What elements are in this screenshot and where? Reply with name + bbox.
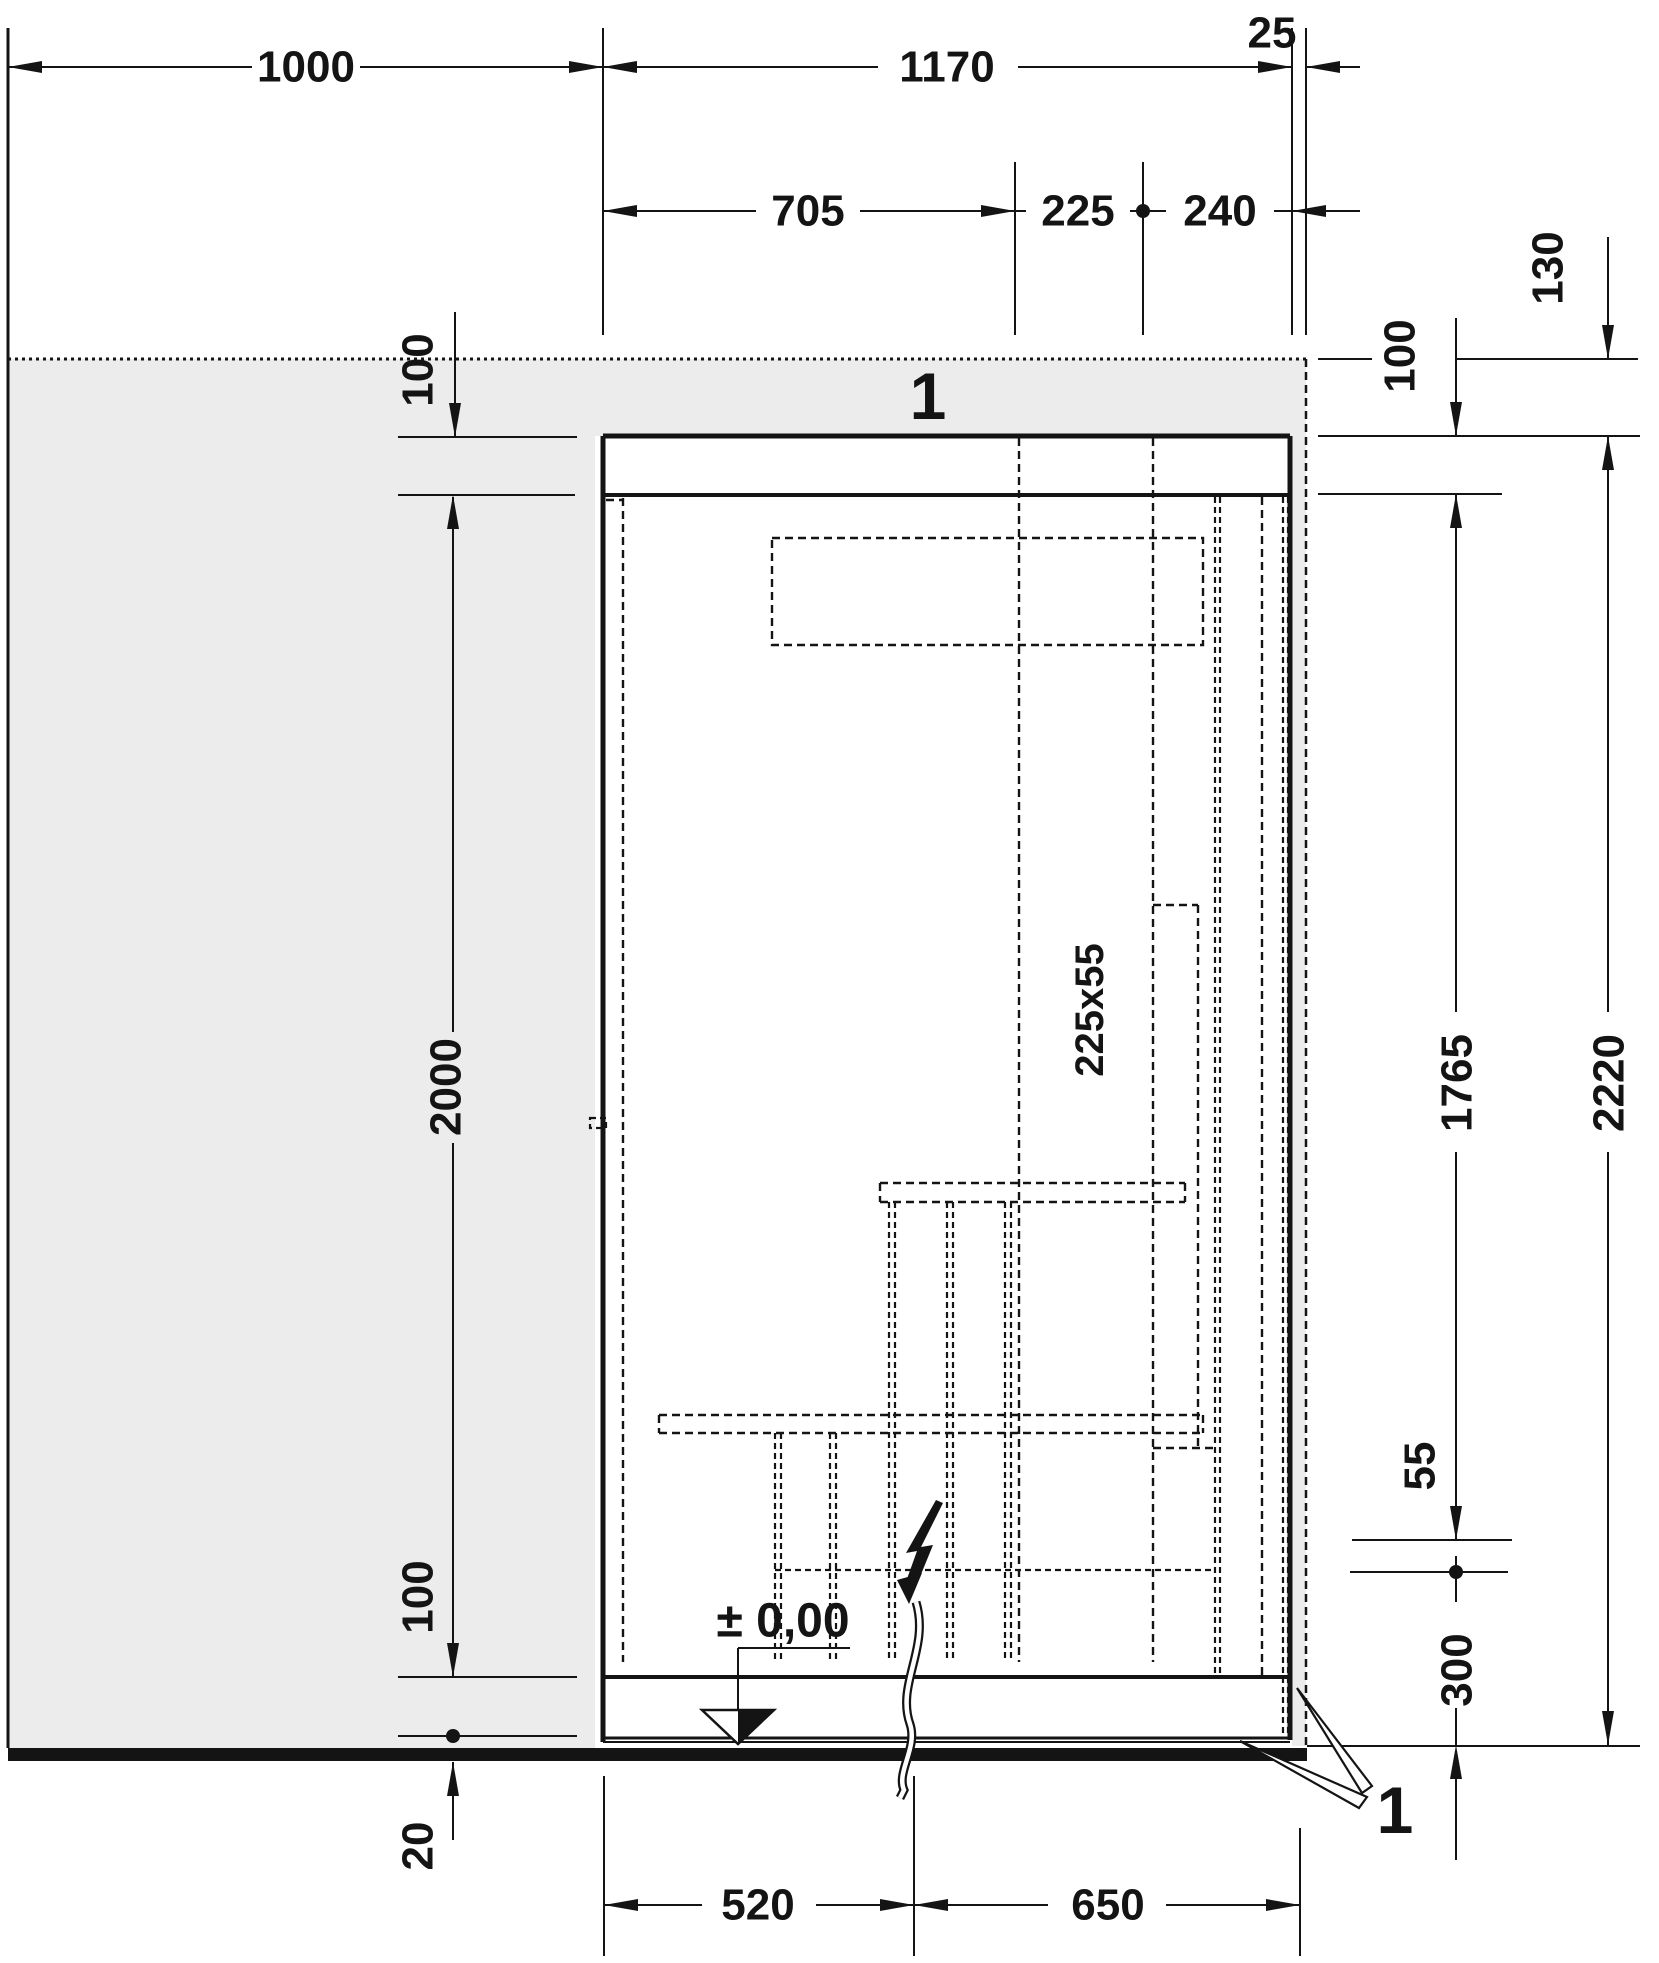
section-markers: 1 1 bbox=[910, 359, 1414, 1847]
dimension-705: 705 bbox=[603, 187, 1015, 236]
dim-label-650: 650 bbox=[1071, 1881, 1144, 1930]
dimension-2220: 2220 bbox=[1585, 436, 1634, 1745]
chain-point-dot-left bbox=[446, 1729, 460, 1743]
floor-level-marker: ± 0,00 bbox=[668, 1595, 893, 1745]
dim-label-100-top-left: 100 bbox=[394, 333, 443, 406]
dimension-650: 650 bbox=[914, 1881, 1300, 1930]
dim-label-225: 225 bbox=[1041, 187, 1114, 236]
dimension-100-right: 100 bbox=[1376, 318, 1463, 436]
dim-label-300: 300 bbox=[1433, 1633, 1482, 1706]
dimension-1000: 1000 bbox=[8, 43, 603, 92]
dimension-240: 240 bbox=[1143, 187, 1360, 236]
floor bbox=[8, 1746, 1640, 1761]
dim-label-55: 55 bbox=[1396, 1442, 1445, 1491]
dimension-row-top: 1000 1170 25 705 225 bbox=[8, 9, 1360, 336]
dim-label-20: 20 bbox=[394, 1822, 443, 1871]
dimension-20: 20 bbox=[394, 1762, 460, 1870]
dim-label-2000: 2000 bbox=[422, 1038, 471, 1136]
dim-label-705: 705 bbox=[771, 187, 844, 236]
installation-drawing: 225x55 ± 0,00 1 1 bbox=[0, 0, 1659, 1963]
dim-label-25: 25 bbox=[1248, 9, 1297, 58]
dimension-225: 225 bbox=[1015, 187, 1150, 236]
lightning-arrow-tip bbox=[897, 1573, 922, 1604]
dim-label-100-bottom-left: 100 bbox=[394, 1560, 443, 1633]
wall-left-fill bbox=[8, 359, 595, 1748]
drawing-canvas: 225x55 ± 0,00 1 1 bbox=[0, 0, 1659, 1963]
dim-label-1170: 1170 bbox=[899, 43, 994, 92]
dimension-row-bottom: 520 650 bbox=[604, 1776, 1300, 1956]
unit-interior-hidden-lines: 225x55 bbox=[590, 438, 1288, 1738]
interior-top-box bbox=[772, 538, 1203, 645]
dimension-100-bottom-left: 100 bbox=[394, 1560, 443, 1633]
dimension-130: 130 bbox=[1524, 231, 1615, 359]
wall-area bbox=[8, 28, 1306, 1748]
floor-level-label: ± 0,00 bbox=[716, 1595, 849, 1648]
dim-label-2220: 2220 bbox=[1585, 1034, 1634, 1132]
section-marker-top: 1 bbox=[910, 359, 947, 433]
dimension-1170: 1170 bbox=[603, 43, 1292, 92]
dim-label-240: 240 bbox=[1183, 187, 1256, 236]
floor-slab-bar bbox=[8, 1748, 1307, 1761]
dimension-column-right: 130 100 1765 55 300 bbox=[1318, 231, 1640, 1860]
dim-label-100-right: 100 bbox=[1376, 319, 1425, 392]
dim-label-520: 520 bbox=[721, 1881, 794, 1930]
wall-top-fill bbox=[595, 359, 1306, 436]
dimension-55: 55 bbox=[1396, 1442, 1445, 1491]
dim-label-130: 130 bbox=[1524, 231, 1573, 304]
dimension-1765: 1765 bbox=[1433, 494, 1482, 1540]
dim-label-1765: 1765 bbox=[1433, 1034, 1482, 1132]
dimension-520: 520 bbox=[604, 1881, 914, 1930]
wall-right-strip-fill bbox=[1292, 436, 1306, 1746]
dim-label-1000: 1000 bbox=[257, 43, 355, 92]
section-marker-bottom: 1 bbox=[1377, 1773, 1414, 1847]
duct-size-label: 225x55 bbox=[1068, 943, 1112, 1076]
